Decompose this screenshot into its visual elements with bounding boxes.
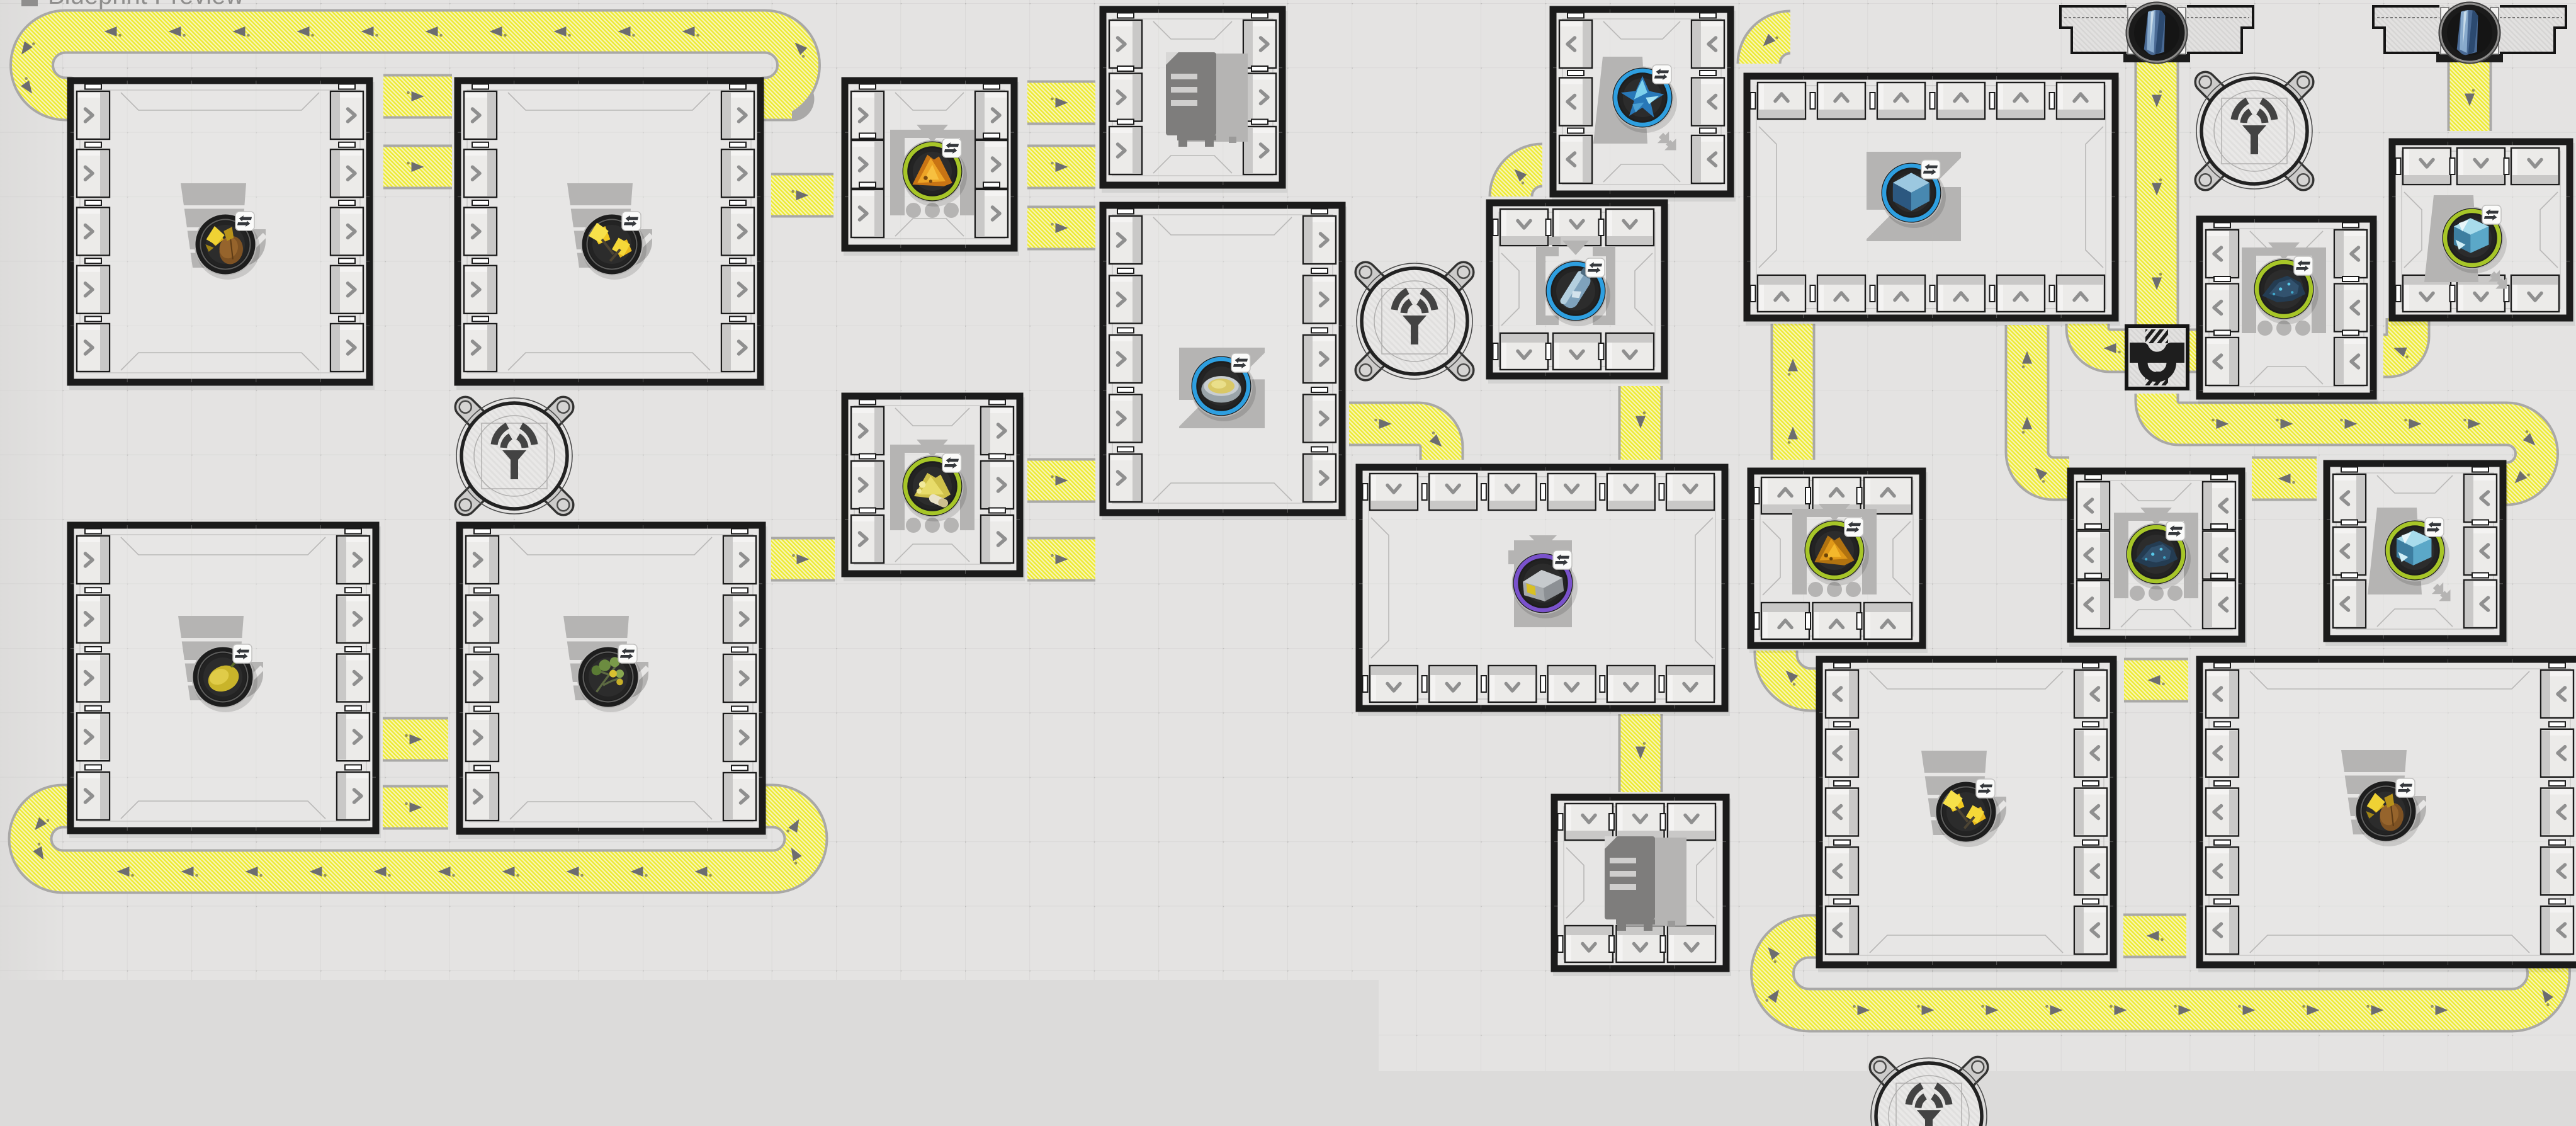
svg-text:Blueprint Preview: Blueprint Preview bbox=[48, 0, 244, 9]
